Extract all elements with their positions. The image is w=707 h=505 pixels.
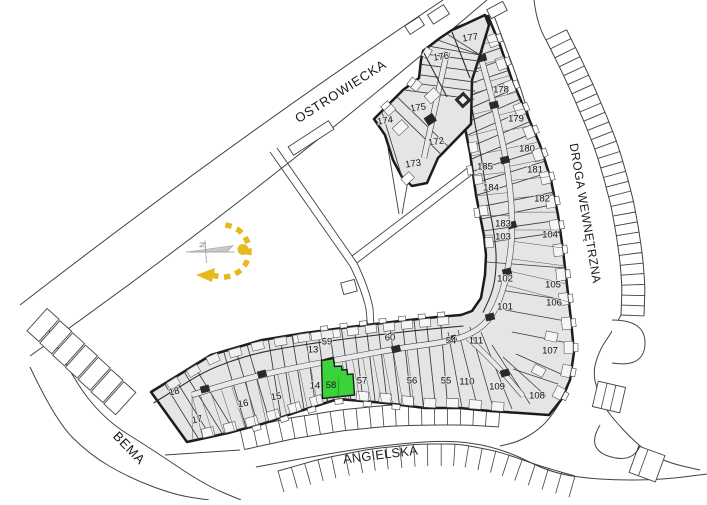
svg-text:103: 103 [495, 232, 511, 243]
svg-text:175: 175 [410, 101, 427, 114]
svg-text:14: 14 [310, 381, 321, 392]
svg-text:183: 183 [495, 219, 511, 230]
svg-text:15: 15 [270, 391, 282, 404]
svg-text:176: 176 [433, 50, 450, 63]
svg-text:13: 13 [308, 345, 319, 356]
svg-text:108: 108 [529, 391, 545, 402]
svg-text:16: 16 [237, 398, 249, 411]
svg-text:18: 18 [168, 385, 181, 398]
svg-text:59: 59 [322, 337, 333, 348]
svg-text:55: 55 [441, 376, 452, 387]
svg-text:182: 182 [534, 194, 550, 205]
svg-text:174: 174 [377, 114, 394, 127]
svg-text:58: 58 [326, 380, 337, 391]
svg-text:56: 56 [407, 376, 418, 387]
svg-text:184: 184 [483, 183, 499, 194]
svg-text:179: 179 [508, 114, 524, 125]
svg-text:104: 104 [542, 230, 558, 241]
svg-text:102: 102 [497, 274, 513, 285]
svg-text:185: 185 [477, 162, 493, 173]
svg-text:181: 181 [527, 165, 543, 176]
svg-text:57: 57 [357, 376, 368, 387]
svg-text:60: 60 [385, 333, 396, 344]
svg-text:177: 177 [462, 31, 479, 44]
svg-text:109: 109 [489, 382, 505, 393]
svg-text:173: 173 [405, 157, 422, 170]
svg-text:N: N [198, 242, 207, 248]
svg-text:107: 107 [542, 346, 558, 357]
svg-text:106: 106 [546, 298, 562, 309]
svg-text:110: 110 [459, 377, 474, 388]
svg-text:178: 178 [493, 85, 509, 96]
svg-text:180: 180 [519, 144, 535, 155]
svg-text:172: 172 [428, 135, 445, 148]
svg-text:17: 17 [191, 413, 204, 426]
svg-text:111: 111 [469, 336, 483, 347]
svg-text:101: 101 [497, 302, 513, 313]
svg-text:54: 54 [446, 336, 457, 347]
svg-text:105: 105 [545, 280, 561, 291]
